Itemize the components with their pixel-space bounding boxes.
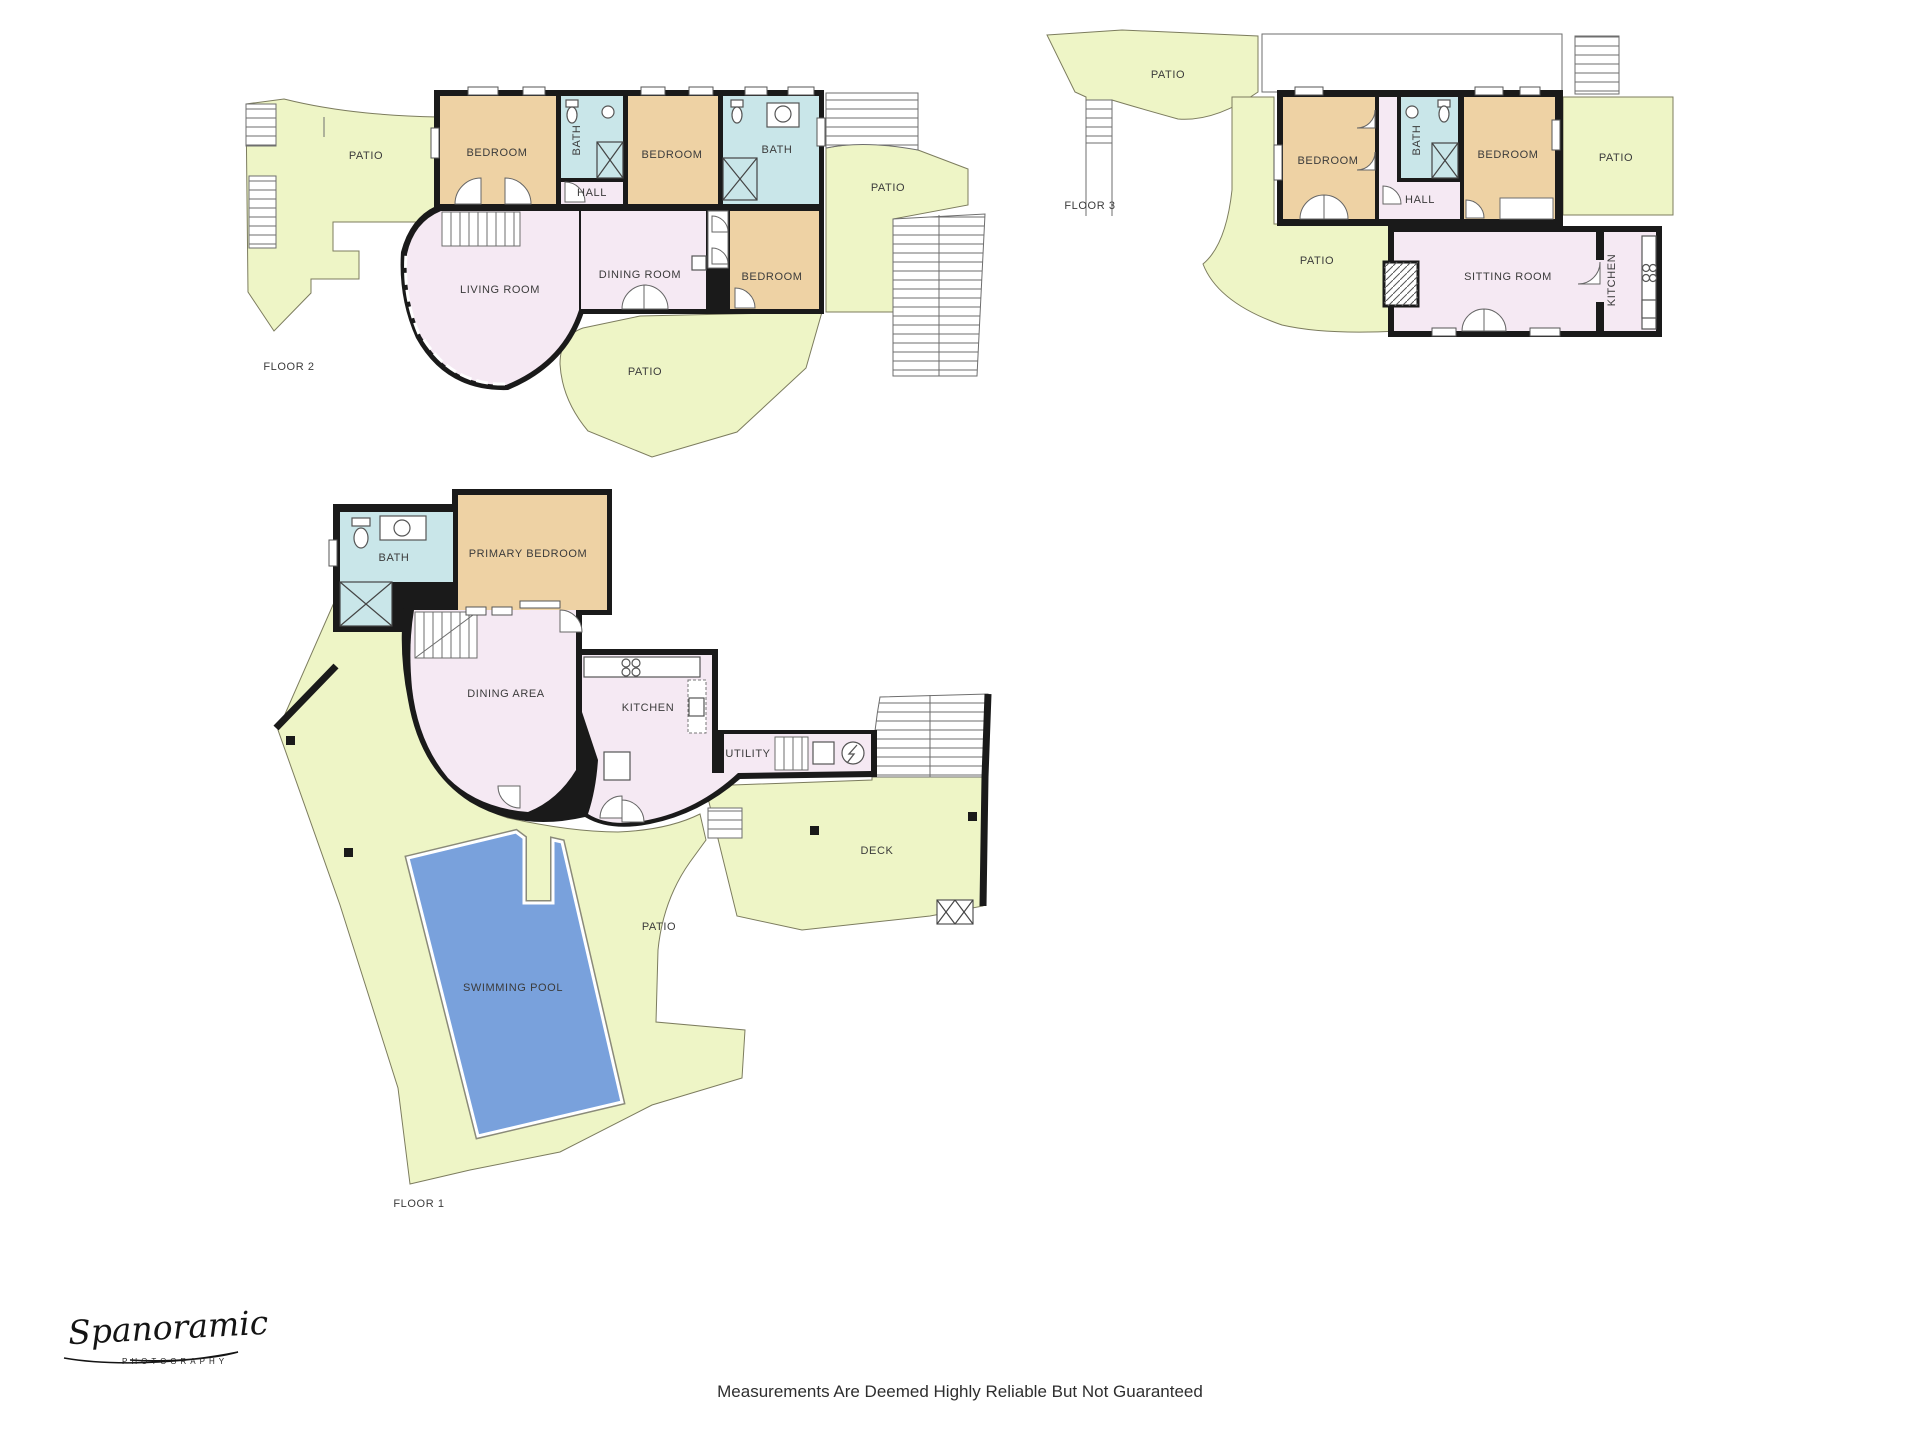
disclaimer-text: Measurements Are Deemed Highly Reliable … xyxy=(0,1382,1920,1402)
room-label-primary-bedroom: PRIMARY BEDROOM xyxy=(469,548,588,560)
floor-title-floor1: FLOOR 1 xyxy=(393,1198,444,1210)
room-label-bath: BATH xyxy=(571,125,583,156)
room-label-dining-room: DINING ROOM xyxy=(599,269,681,281)
room-label-bedroom: BEDROOM xyxy=(1477,149,1538,161)
room-label-patio: PATIO xyxy=(642,921,676,933)
room-label-patio: PATIO xyxy=(349,150,383,162)
room-label-sitting-room: SITTING ROOM xyxy=(1464,271,1552,283)
photography-logo: Spanoramic PHOTOGRAPHY xyxy=(60,1308,250,1378)
room-label-deck: DECK xyxy=(861,845,894,857)
floor-title-floor3: FLOOR 3 xyxy=(1064,200,1115,212)
floor-title-floor2: FLOOR 2 xyxy=(263,361,314,373)
room-label-living-room: LIVING ROOM xyxy=(460,284,540,296)
logo-subtitle-text: PHOTOGRAPHY xyxy=(122,1357,228,1366)
room-label-bedroom: BEDROOM xyxy=(741,271,802,283)
room-label-patio: PATIO xyxy=(1151,69,1185,81)
room-label-hall: HALL xyxy=(577,187,607,199)
room-label-kitchen: KITCHEN xyxy=(1606,254,1618,306)
room-label-kitchen: KITCHEN xyxy=(622,702,674,714)
room-labels-layer: PATIOBEDROOMBATHBEDROOMBATHHALLLIVING RO… xyxy=(0,0,1920,1440)
floorplan-page: PATIOBEDROOMBATHBEDROOMBATHHALLLIVING RO… xyxy=(0,0,1920,1440)
room-label-bedroom: BEDROOM xyxy=(1297,155,1358,167)
room-label-bath: BATH xyxy=(379,552,410,564)
room-label-hall: HALL xyxy=(1405,194,1435,206)
room-label-utility: UTILITY xyxy=(725,748,770,760)
room-label-bath: BATH xyxy=(762,144,793,156)
room-label-swimming-pool: SWIMMING POOL xyxy=(463,982,563,994)
room-label-bath: BATH xyxy=(1411,125,1423,156)
room-label-patio: PATIO xyxy=(1300,255,1334,267)
room-label-bedroom: BEDROOM xyxy=(641,149,702,161)
room-label-bedroom: BEDROOM xyxy=(466,147,527,159)
room-label-patio: PATIO xyxy=(871,182,905,194)
room-label-patio: PATIO xyxy=(1599,152,1633,164)
room-label-dining-area: DINING AREA xyxy=(467,688,545,700)
room-label-patio: PATIO xyxy=(628,366,662,378)
